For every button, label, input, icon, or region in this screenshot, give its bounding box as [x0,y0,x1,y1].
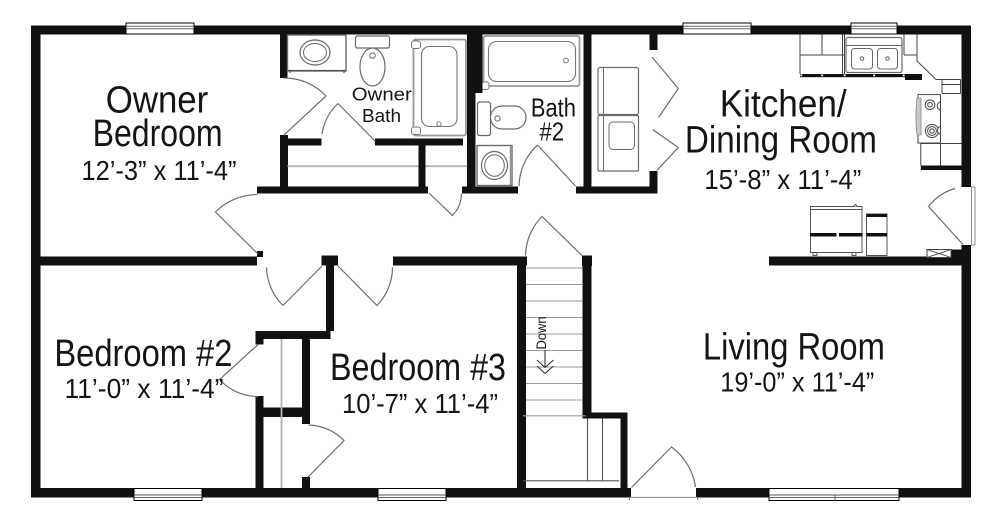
svg-text:#2: #2 [539,117,564,147]
svg-text:11’-0” x 11’-4”: 11’-0” x 11’-4” [65,373,224,404]
svg-text:19’-0” x 11’-4”: 19’-0” x 11’-4” [720,367,874,398]
svg-text:10’-7” x 11’-4”: 10’-7” x 11’-4” [342,388,498,419]
svg-text:12’-3” x 11’-4”: 12’-3” x 11’-4” [82,155,237,186]
svg-text:Bath: Bath [362,106,401,126]
svg-text:Living Room: Living Room [703,327,885,369]
svg-text:15’-8” x 11’-4”: 15’-8” x 11’-4” [704,164,861,195]
svg-text:Down: Down [533,317,549,350]
svg-text:Owner: Owner [352,85,412,105]
svg-text:Bedroom: Bedroom [93,113,223,155]
svg-text:Bedroom #3: Bedroom #3 [330,347,506,389]
svg-text:Dining Room: Dining Room [685,119,877,161]
svg-text:Bedroom #2: Bedroom #2 [54,333,232,375]
